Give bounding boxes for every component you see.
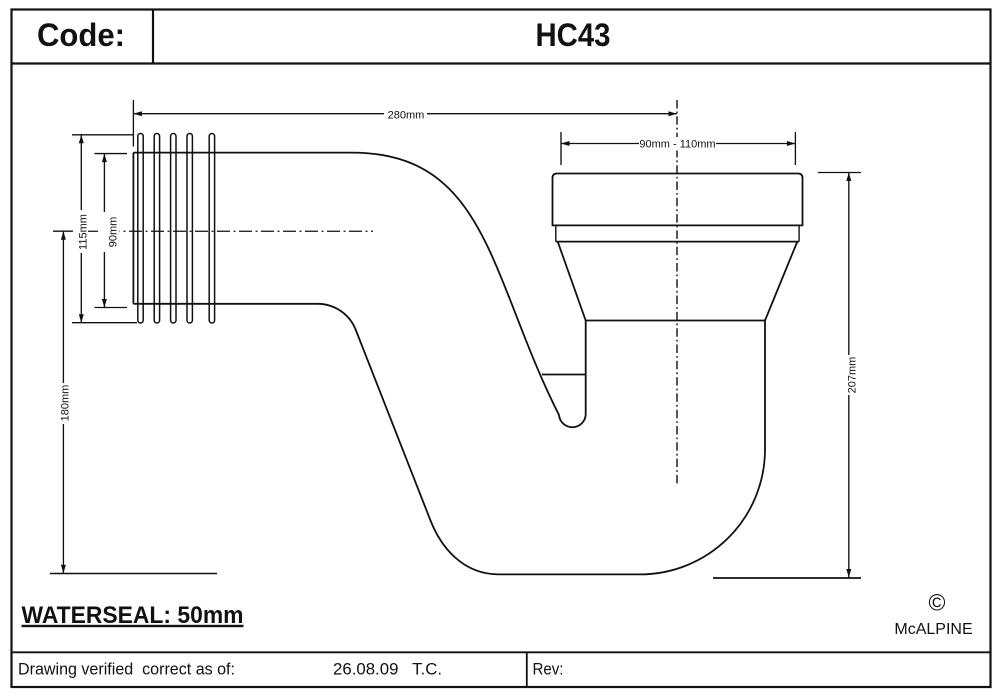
svg-text:90mm - 110mm: 90mm - 110mm — [639, 139, 715, 151]
svg-text:©: © — [929, 590, 946, 616]
svg-text:Code:: Code: — [37, 17, 125, 53]
svg-text:WATERSEAL: 50mm: WATERSEAL: 50mm — [22, 602, 244, 629]
svg-text:90mm: 90mm — [108, 217, 120, 248]
svg-text:Drawing verified correct as o: Drawing verified correct as of: — [18, 659, 235, 678]
svg-text:McALPINE: McALPINE — [894, 621, 972, 638]
svg-text:280mm: 280mm — [388, 110, 425, 122]
svg-text:115mm: 115mm — [77, 214, 89, 250]
svg-text:26.08.09 T.C.: 26.08.09 T.C. — [333, 659, 442, 678]
svg-text:207mm: 207mm — [847, 357, 859, 394]
svg-text:180mm: 180mm — [59, 385, 71, 422]
svg-text:Rev:: Rev: — [533, 660, 564, 678]
svg-text:HC43: HC43 — [536, 17, 611, 53]
